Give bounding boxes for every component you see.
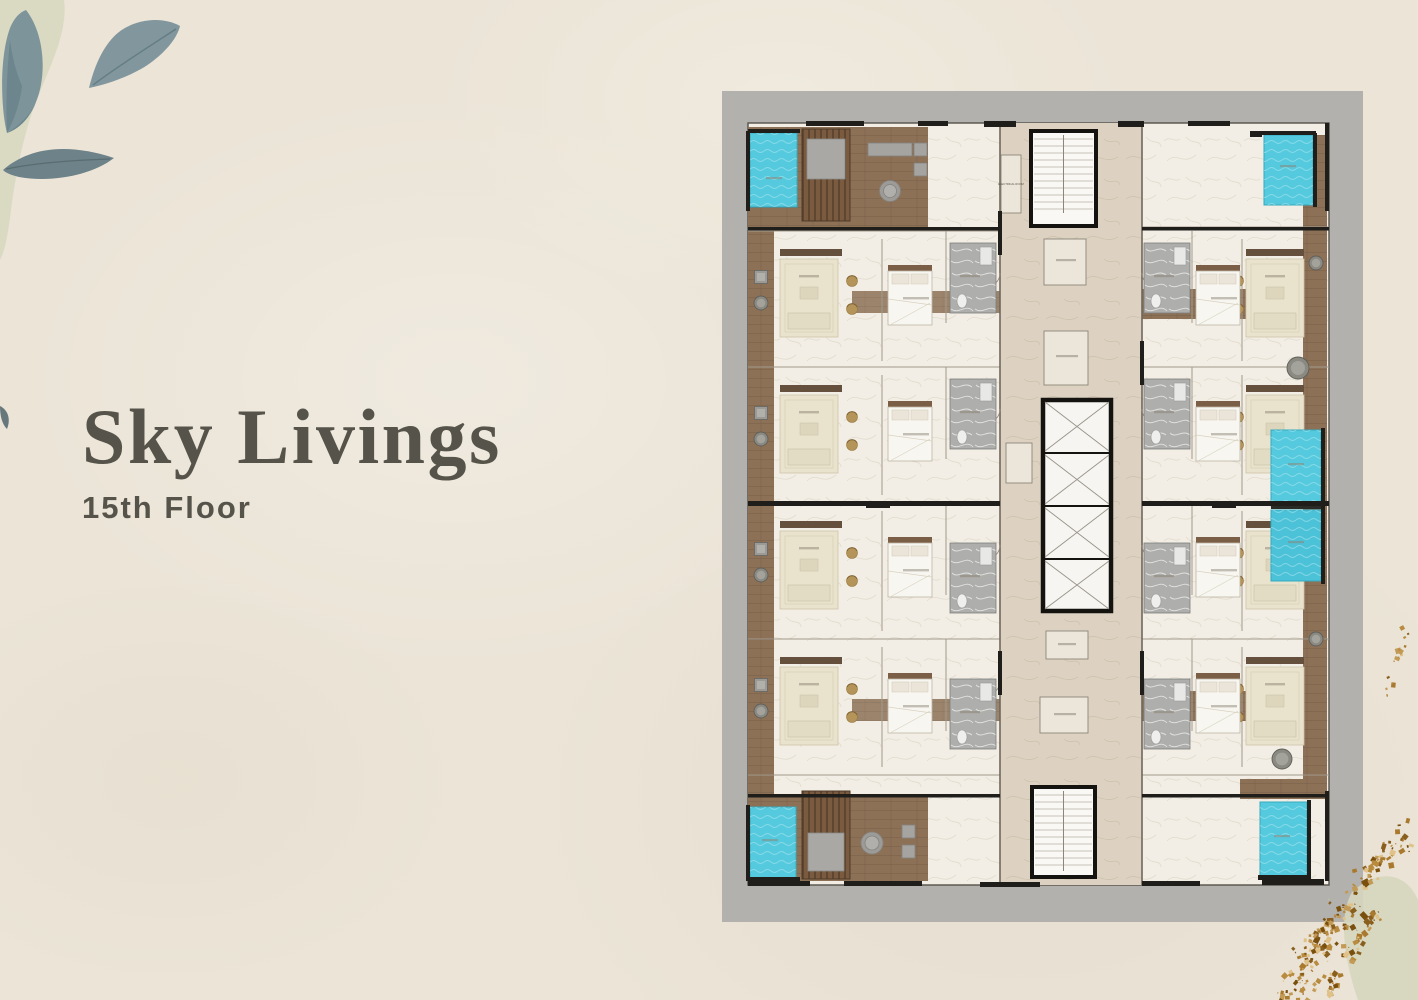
leaf-icon xyxy=(3,149,114,179)
leaf-vein xyxy=(93,29,176,85)
pool xyxy=(1264,135,1313,205)
pool xyxy=(1271,510,1321,581)
leaf-icon xyxy=(89,20,180,88)
pool xyxy=(750,133,797,207)
leaf-watercolor-decoration xyxy=(0,0,260,440)
elevator-core xyxy=(1043,400,1111,611)
floor-plan-image: ELECTRICAL ROOM xyxy=(722,91,1363,922)
pool xyxy=(750,807,796,879)
floor-plan-svg: ELECTRICAL ROOM xyxy=(722,91,1363,922)
leaf-tip xyxy=(0,406,9,429)
leaf-shade xyxy=(6,40,36,133)
page-subtitle: 15th Floor xyxy=(82,490,502,526)
leaf-vein xyxy=(6,159,110,169)
electrical-room-label: ELECTRICAL ROOM xyxy=(998,182,1024,186)
page-background: Sky Livings 15th Floor xyxy=(0,0,1418,1000)
hero-text-block: Sky Livings 15th Floor xyxy=(82,398,502,526)
pool xyxy=(1271,430,1321,506)
sage-wash-blob xyxy=(0,0,65,260)
page-title: Sky Livings xyxy=(82,398,502,476)
staircase xyxy=(1031,131,1096,226)
leaf-icon xyxy=(2,10,43,133)
staircase xyxy=(1032,787,1095,877)
pool xyxy=(1260,802,1307,877)
